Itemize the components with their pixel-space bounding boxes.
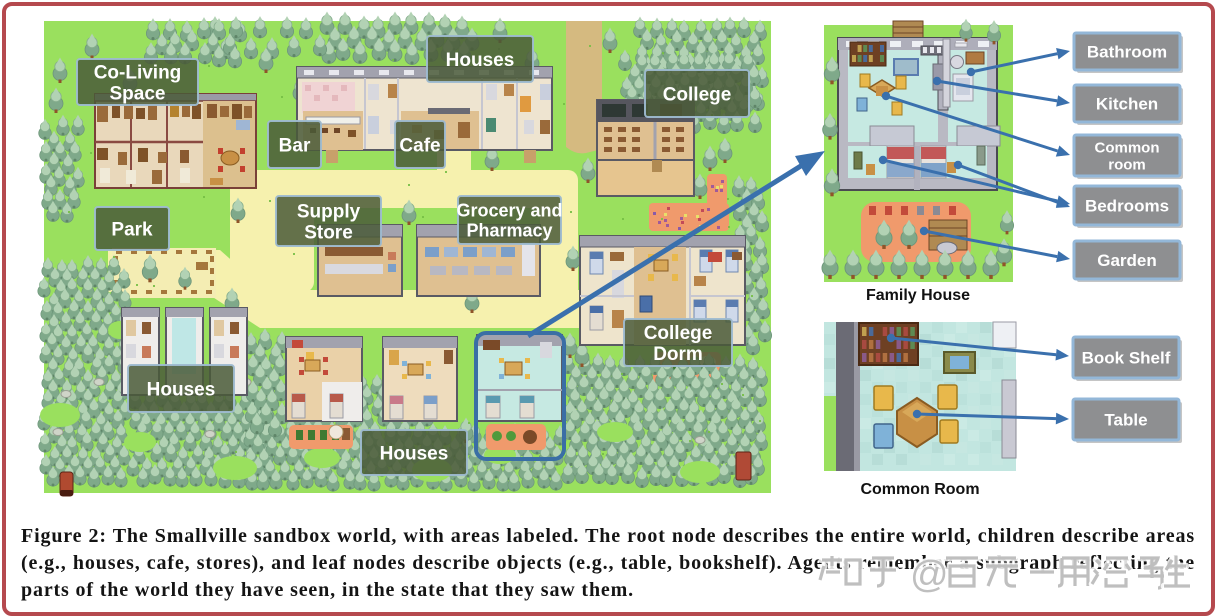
svg-text:Table: Table	[1104, 411, 1147, 430]
svg-text:Supply: Supply	[297, 201, 361, 222]
svg-text:Co-Living: Co-Living	[94, 62, 182, 83]
svg-text:Bathroom: Bathroom	[1087, 43, 1167, 62]
svg-text:Pharmacy: Pharmacy	[466, 220, 552, 240]
svg-text:Houses: Houses	[380, 443, 449, 464]
svg-text:Cafe: Cafe	[399, 135, 440, 156]
svg-text:Houses: Houses	[446, 50, 515, 71]
svg-text:College: College	[644, 323, 713, 344]
svg-text:Common: Common	[1095, 139, 1160, 156]
svg-text:Garden: Garden	[1097, 251, 1157, 270]
svg-text:Common Room: Common Room	[860, 481, 979, 498]
svg-text:Kitchen: Kitchen	[1096, 95, 1158, 114]
svg-text:Space: Space	[110, 83, 166, 104]
svg-text:room: room	[1108, 156, 1146, 173]
svg-text:Family House: Family House	[866, 287, 970, 304]
svg-text:Book Shelf: Book Shelf	[1082, 349, 1171, 368]
svg-text:College: College	[663, 84, 732, 105]
svg-text:Dorm: Dorm	[653, 344, 703, 365]
svg-text:Grocery and: Grocery and	[456, 200, 562, 220]
svg-text:Store: Store	[304, 222, 353, 243]
svg-text:Bar: Bar	[279, 135, 311, 156]
svg-text:Houses: Houses	[147, 379, 216, 400]
svg-text:Bedrooms: Bedrooms	[1085, 197, 1169, 216]
svg-text:Park: Park	[111, 219, 153, 240]
